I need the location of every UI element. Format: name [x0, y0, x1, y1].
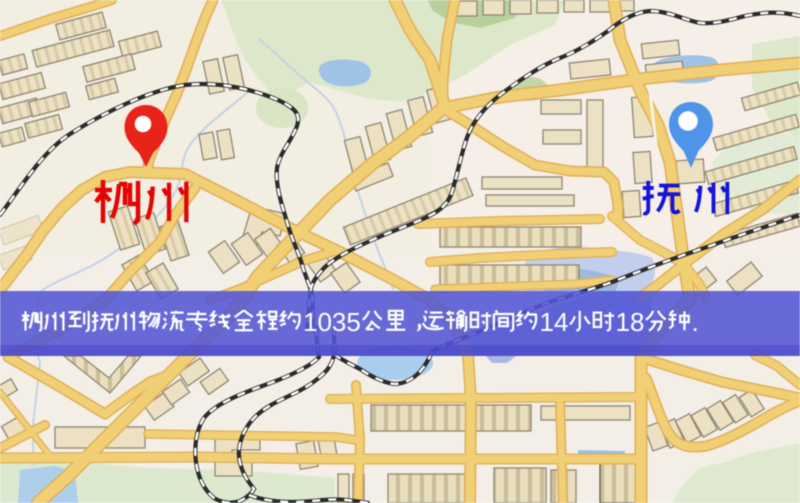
svg-text:.: .: [692, 307, 699, 337]
svg-text:14: 14: [540, 307, 569, 337]
svg-text:1035: 1035: [303, 307, 361, 337]
svg-text:18: 18: [616, 307, 645, 337]
